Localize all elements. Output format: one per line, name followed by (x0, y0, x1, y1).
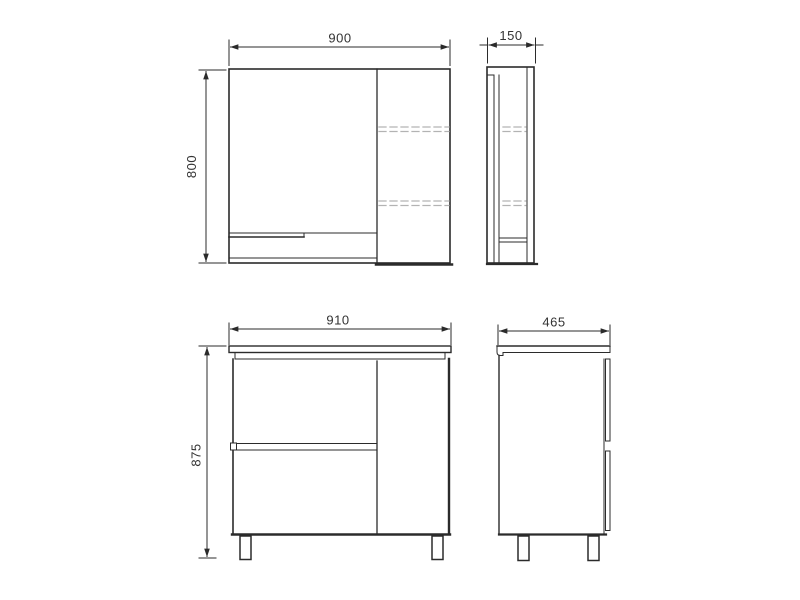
vanity-front-view: 910 875 (189, 313, 452, 560)
mirror-cabinet-side-view: 150 (480, 28, 543, 264)
countertop-nose (497, 346, 503, 356)
vanity-leg (432, 536, 443, 560)
dimension-label-vanity-width: 910 (326, 313, 349, 328)
countertop-slab (229, 346, 451, 353)
dimension-label-vanity-depth: 465 (542, 315, 565, 330)
dimension-mirror-width: 900 (229, 31, 450, 66)
dimension-vanity-height: 875 (189, 346, 227, 558)
technical-drawing: 900 800 150 (0, 0, 800, 600)
dimension-label-vanity-height: 875 (189, 443, 204, 466)
vanity-leg (518, 536, 529, 561)
mirror-cabinet-front-view: 900 800 (184, 31, 452, 265)
mirror-cabinet-outline (229, 69, 450, 263)
vanity-leg (240, 536, 251, 560)
dimension-label-mirror-depth: 150 (499, 28, 522, 43)
dimension-mirror-height: 800 (184, 70, 226, 263)
drawer-front-lower (606, 451, 611, 531)
dimension-label-mirror-height: 800 (184, 155, 199, 178)
drawer-divider-notch (231, 443, 237, 450)
dimension-vanity-width: 910 (229, 313, 451, 345)
dimension-mirror-depth: 150 (480, 28, 543, 63)
drawer-front-upper (606, 359, 611, 441)
dimension-vanity-depth: 465 (498, 315, 610, 345)
vanity-leg (588, 536, 599, 561)
dimension-label-mirror-width: 900 (328, 31, 351, 46)
vanity-side-view: 465 (497, 315, 610, 561)
technical-drawing-canvas: 900 800 150 (0, 0, 800, 600)
